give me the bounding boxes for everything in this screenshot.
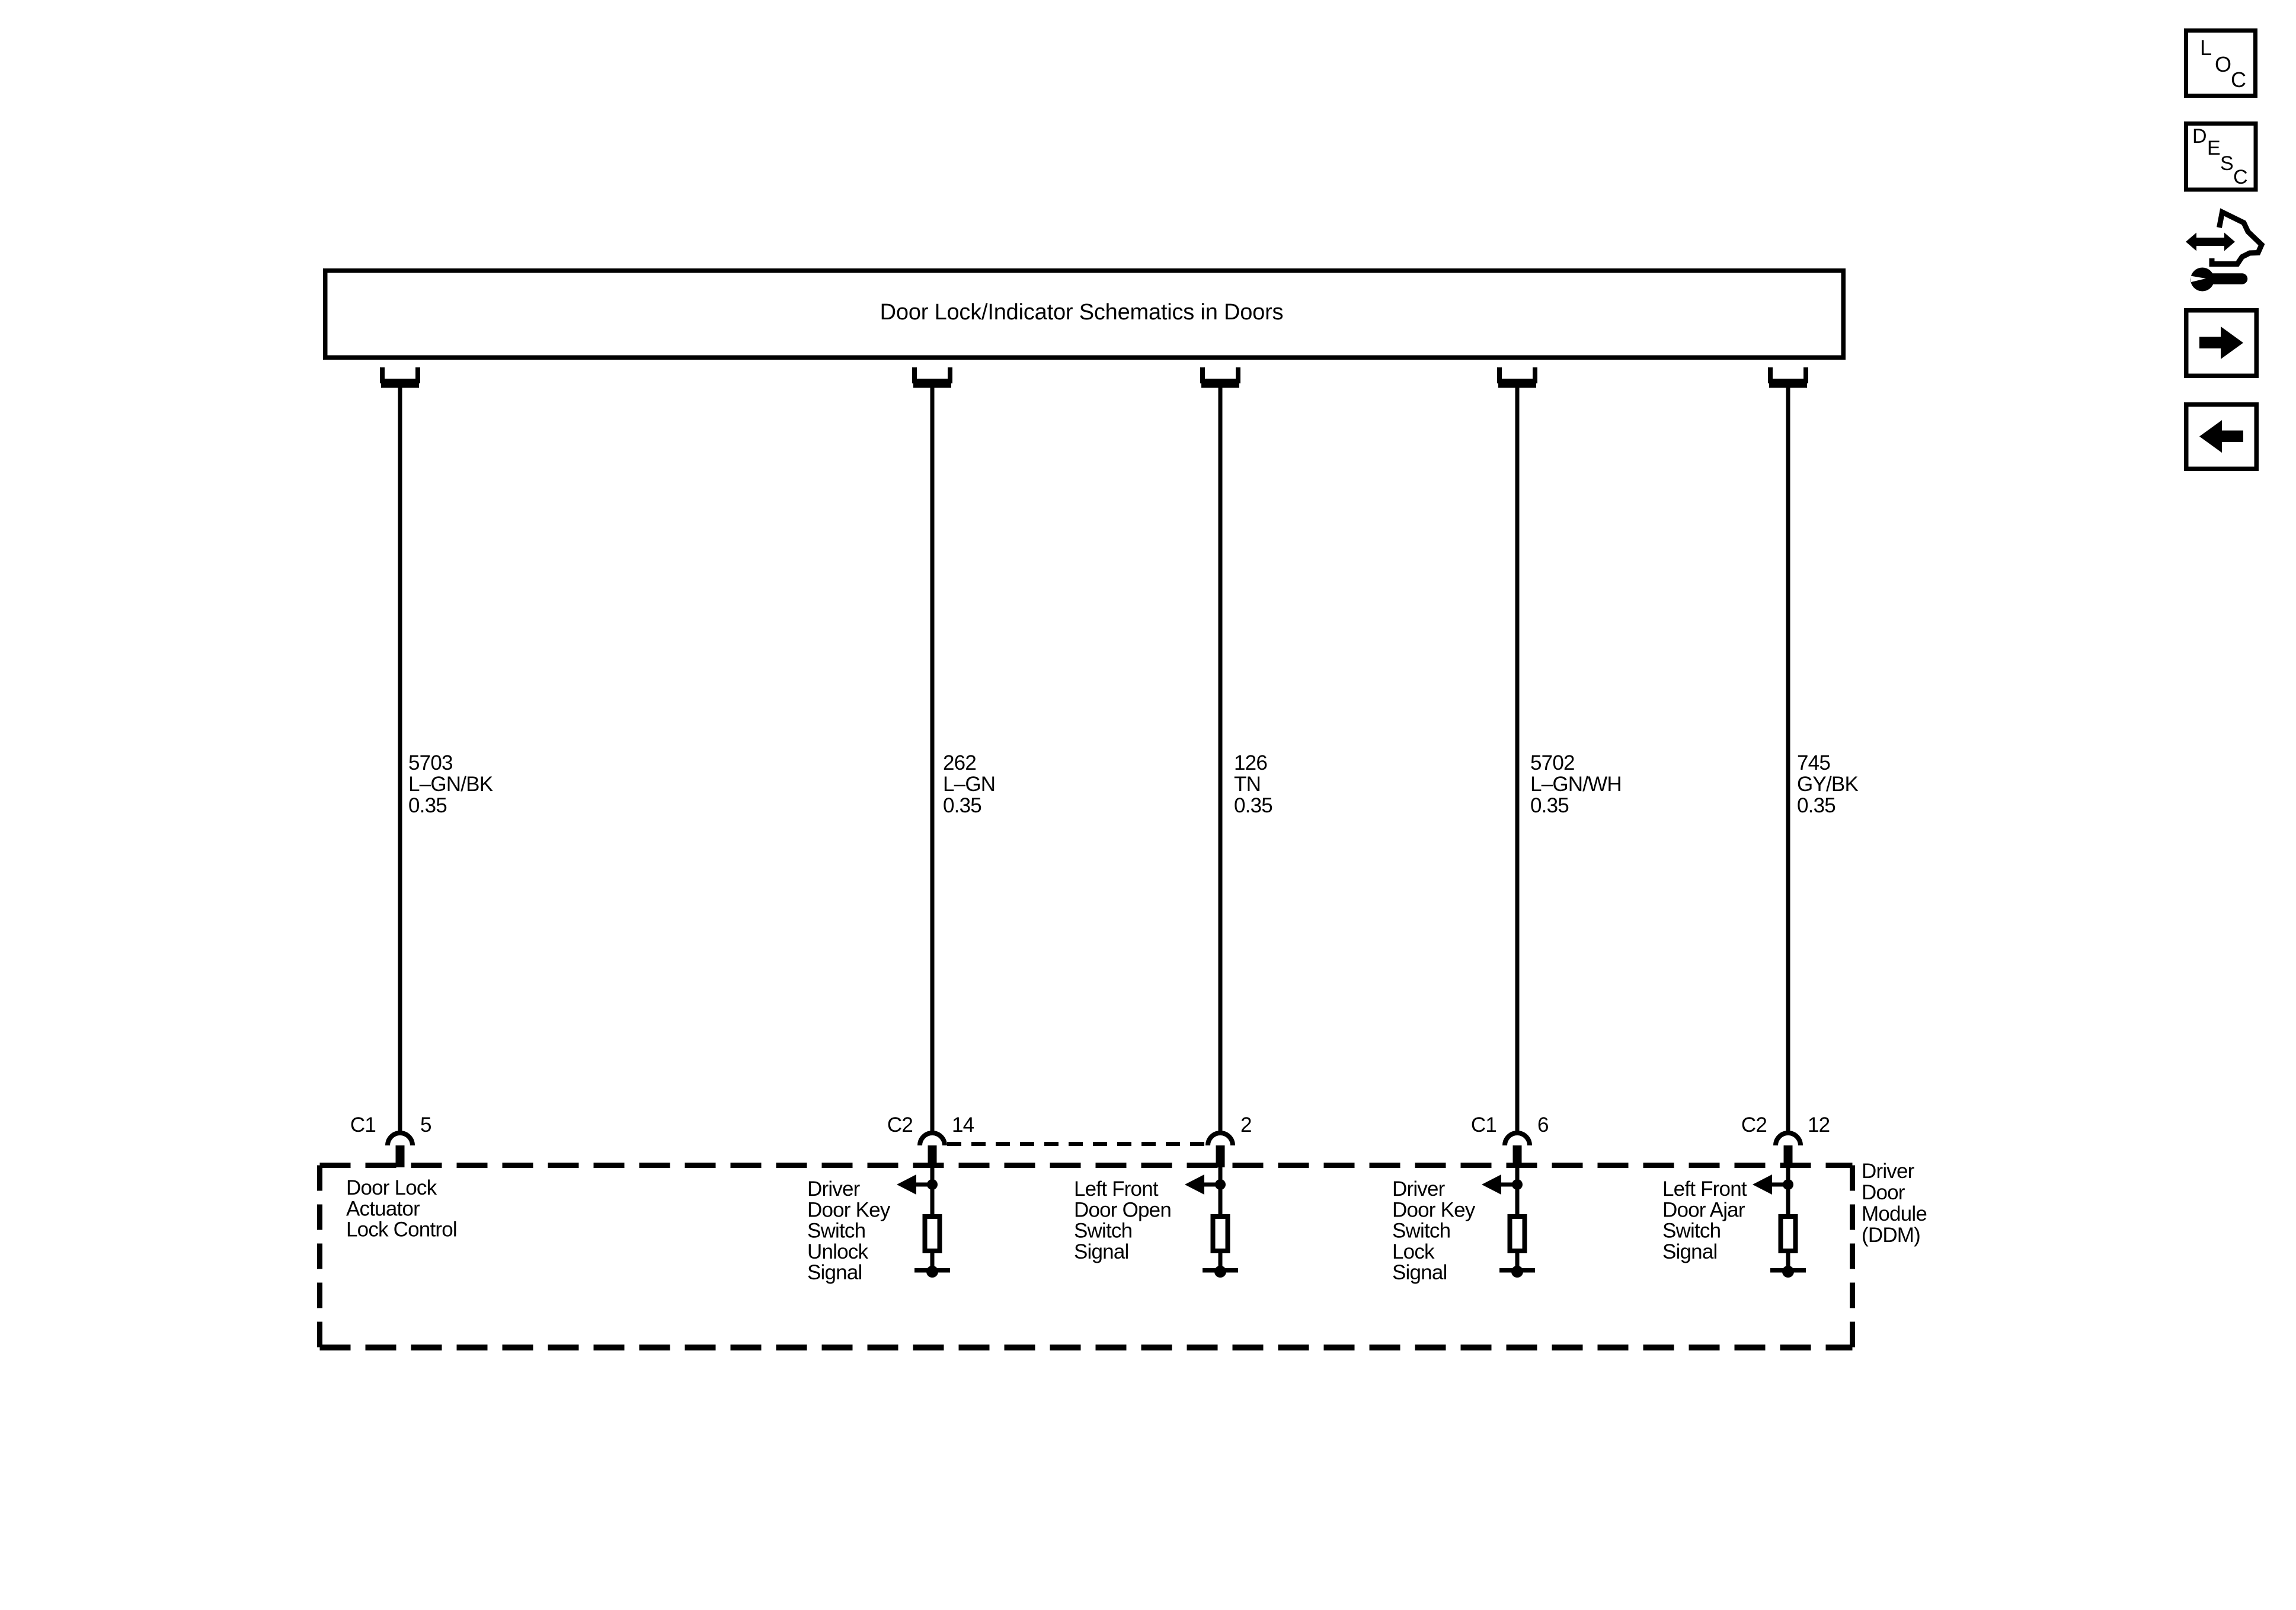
svg-text:745: 745 [1797,751,1830,774]
svg-text:Lock Control: Lock Control [346,1218,457,1241]
svg-text:262: 262 [943,751,976,774]
svg-text:Driver: Driver [807,1177,861,1201]
svg-text:5703: 5703 [408,751,453,774]
svg-text:(DDM): (DDM) [1862,1224,1920,1247]
svg-text:Actuator: Actuator [346,1197,420,1220]
svg-text:5702: 5702 [1530,751,1575,774]
svg-text:Driver: Driver [1862,1160,1915,1183]
svg-text:0.35: 0.35 [1234,794,1272,817]
svg-text:TN: TN [1234,773,1261,796]
svg-text:5: 5 [420,1113,431,1137]
svg-text:O: O [2215,52,2231,76]
svg-text:0.35: 0.35 [943,794,981,817]
svg-text:Driver: Driver [1392,1177,1446,1201]
svg-text:C2: C2 [1741,1113,1767,1137]
svg-text:L–GN: L–GN [943,773,995,796]
svg-text:C1: C1 [350,1113,376,1137]
svg-text:Signal: Signal [1392,1261,1447,1284]
svg-text:Switch: Switch [1074,1219,1132,1243]
svg-text:0.35: 0.35 [1530,794,1569,817]
svg-text:Signal: Signal [807,1261,862,1284]
svg-text:Lock: Lock [1392,1240,1435,1263]
svg-text:Door Lock: Door Lock [346,1176,437,1199]
svg-text:12: 12 [1808,1113,1830,1137]
svg-text:S: S [2220,152,2234,175]
svg-text:Signal: Signal [1662,1240,1718,1263]
svg-text:Door Lock/Indicator Schematics: Door Lock/Indicator Schematics in Doors [880,300,1284,325]
svg-text:GY/BK: GY/BK [1797,773,1858,796]
svg-text:0.35: 0.35 [408,794,447,817]
svg-text:14: 14 [952,1113,974,1137]
svg-text:L–GN/BK: L–GN/BK [408,773,493,796]
svg-text:Door Ajar: Door Ajar [1662,1198,1745,1221]
svg-text:Unlock: Unlock [807,1240,868,1263]
svg-text:D: D [2192,125,2207,148]
svg-text:Switch: Switch [1662,1219,1721,1243]
svg-text:Door Key: Door Key [807,1198,891,1221]
svg-text:0.35: 0.35 [1797,794,1835,817]
svg-text:C: C [2233,166,2248,188]
svg-text:L–GN/WH: L–GN/WH [1530,773,1622,796]
svg-text:Switch: Switch [807,1219,865,1243]
svg-text:Door Open: Door Open [1074,1198,1171,1221]
svg-text:C2: C2 [887,1113,913,1137]
svg-text:Module: Module [1862,1202,1927,1225]
svg-text:Signal: Signal [1074,1240,1129,1263]
svg-text:L: L [2200,36,2212,60]
svg-text:126: 126 [1234,751,1267,774]
svg-text:E: E [2207,137,2221,159]
svg-text:2: 2 [1240,1113,1252,1137]
svg-text:Left Front: Left Front [1662,1177,1747,1201]
svg-text:C1: C1 [1471,1113,1496,1137]
svg-text:Door Key: Door Key [1392,1198,1476,1221]
svg-text:Left Front: Left Front [1074,1177,1159,1201]
svg-text:Door: Door [1862,1181,1905,1204]
svg-text:Switch: Switch [1392,1219,1450,1243]
svg-text:C: C [2231,68,2246,92]
svg-text:6: 6 [1537,1113,1549,1137]
